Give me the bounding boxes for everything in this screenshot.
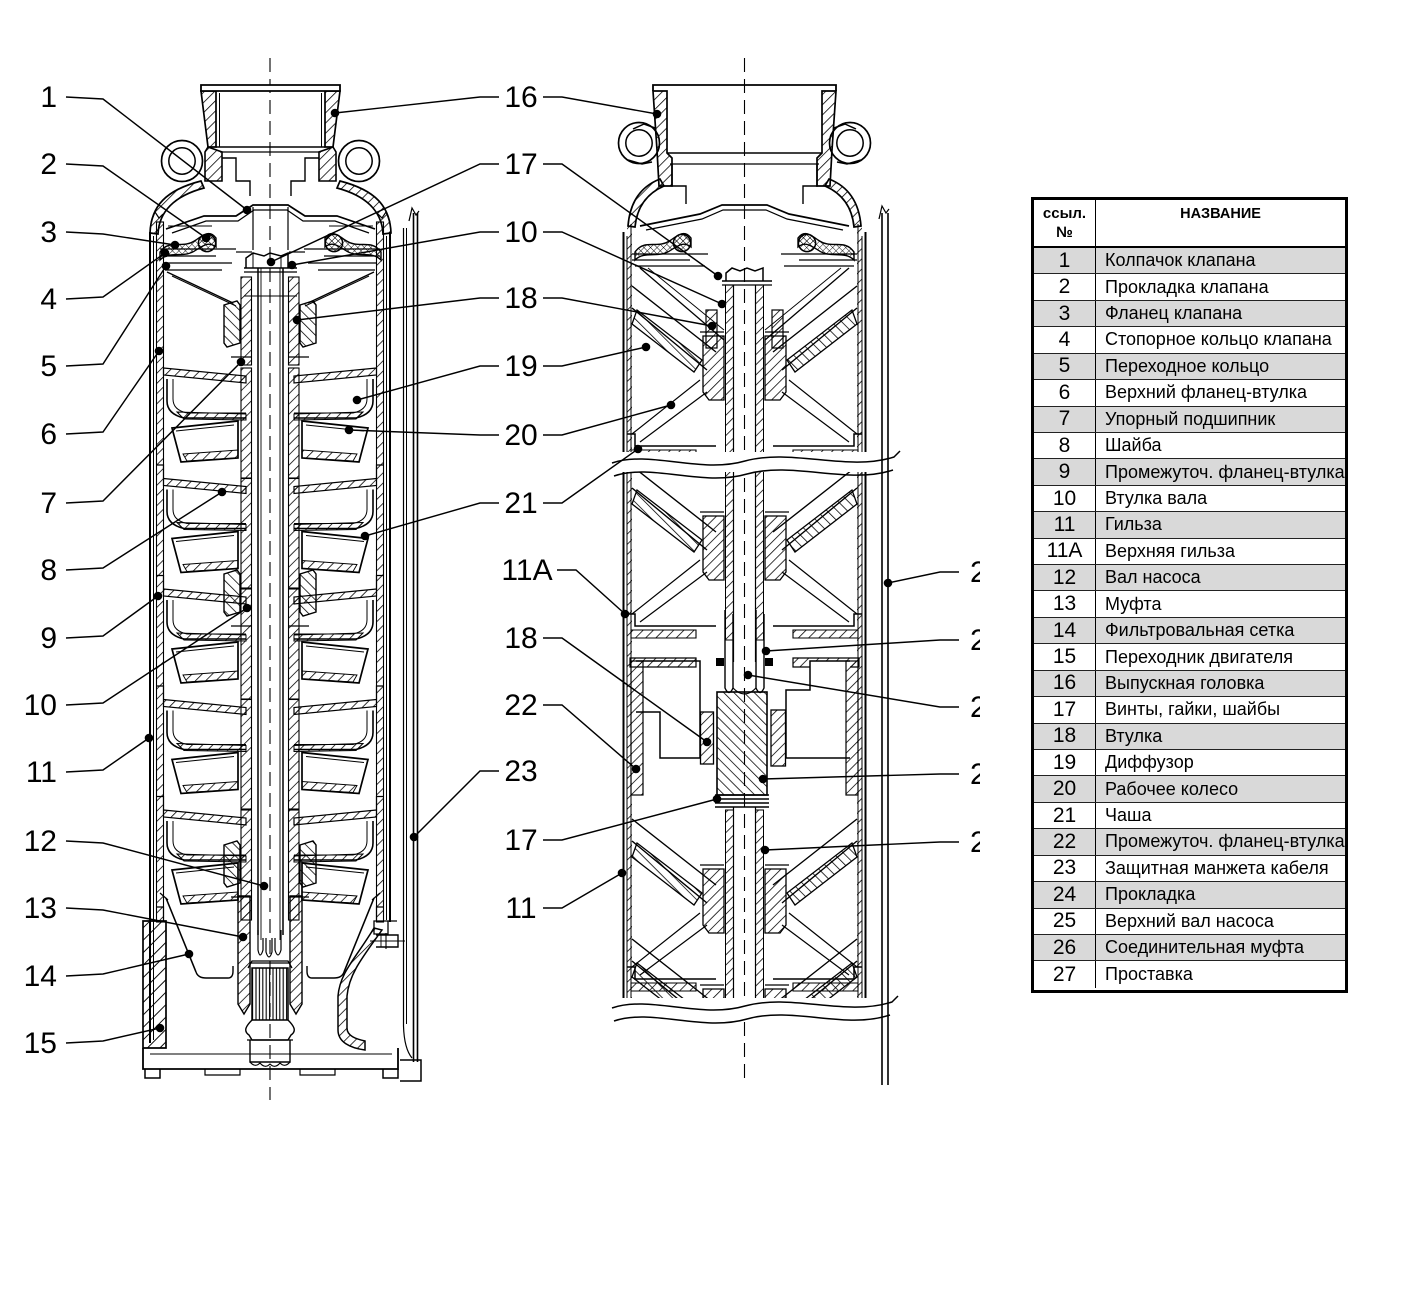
- svg-text:18: 18: [504, 282, 537, 315]
- svg-text:19: 19: [504, 350, 537, 383]
- svg-text:16: 16: [504, 81, 537, 114]
- svg-text:11: 11: [26, 756, 57, 789]
- svg-text:9: 9: [40, 622, 57, 655]
- svg-text:5: 5: [40, 350, 57, 383]
- svg-text:22: 22: [504, 689, 537, 722]
- svg-text:13: 13: [24, 892, 57, 925]
- svg-text:17: 17: [504, 148, 537, 181]
- svg-text:15: 15: [24, 1027, 57, 1060]
- svg-text:2: 2: [40, 148, 57, 181]
- svg-text:4: 4: [40, 283, 57, 316]
- svg-text:21: 21: [504, 487, 537, 520]
- svg-text:12: 12: [24, 825, 57, 858]
- svg-text:18: 18: [504, 622, 537, 655]
- svg-text:6: 6: [40, 418, 57, 451]
- svg-text:8: 8: [40, 554, 57, 587]
- svg-text:23: 23: [504, 755, 537, 788]
- svg-text:1: 1: [40, 81, 57, 114]
- svg-text:11A: 11A: [501, 554, 552, 587]
- svg-text:17: 17: [504, 824, 537, 857]
- svg-text:14: 14: [24, 960, 57, 993]
- svg-text:20: 20: [504, 419, 537, 452]
- svg-text:10: 10: [504, 216, 537, 249]
- svg-text:10: 10: [24, 689, 57, 722]
- svg-text:3: 3: [40, 216, 57, 249]
- svg-text:7: 7: [40, 487, 57, 520]
- svg-text:11: 11: [505, 892, 536, 925]
